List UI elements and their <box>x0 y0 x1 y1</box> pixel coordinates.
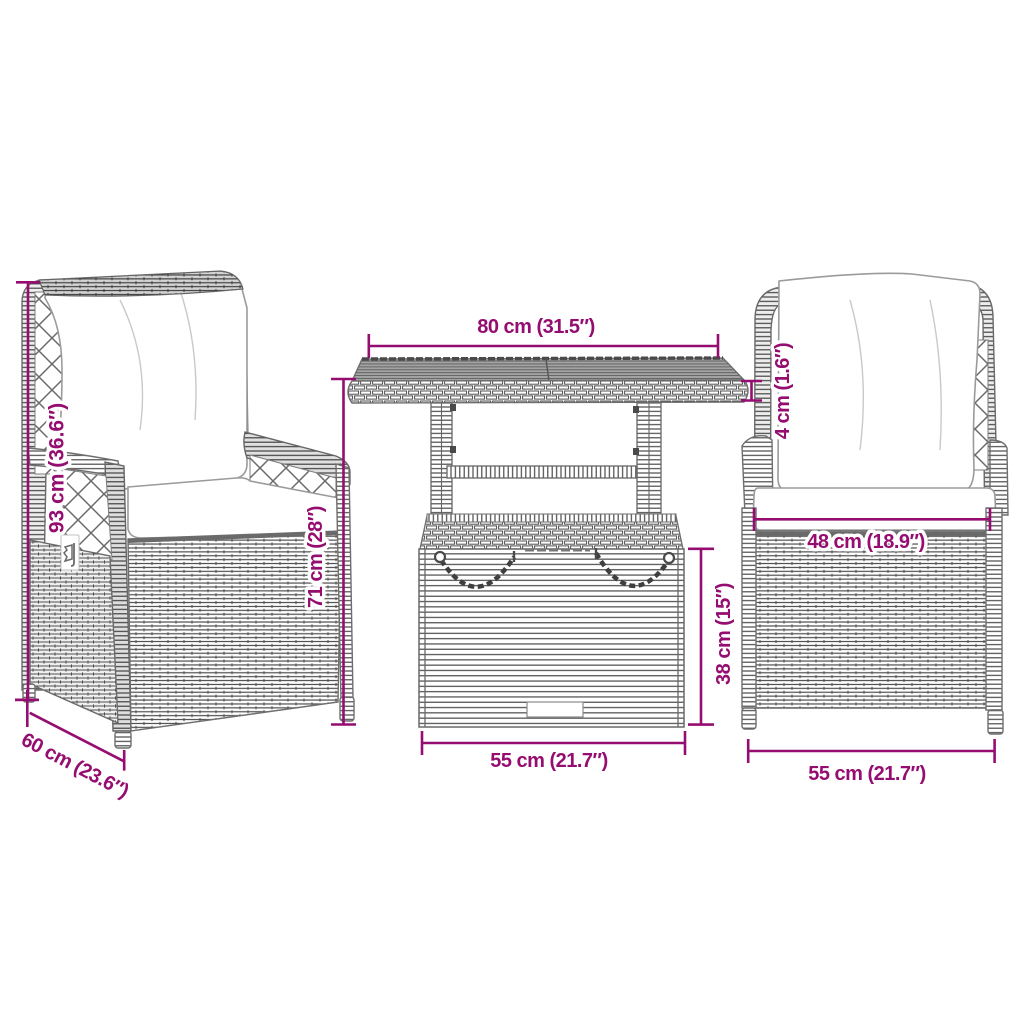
svg-text:55 cm (21.7″): 55 cm (21.7″) <box>808 763 926 785</box>
svg-text:38 cm (15″): 38 cm (15″) <box>713 583 735 685</box>
svg-text:71 cm (28″): 71 cm (28″) <box>305 506 327 608</box>
svg-text:93 cm (36.6″): 93 cm (36.6″) <box>46 403 69 533</box>
svg-text:80 cm (31.5″): 80 cm (31.5″) <box>477 316 595 338</box>
svg-text:48 cm (18.9″): 48 cm (18.9″) <box>807 531 925 553</box>
svg-text:55 cm (21.7″): 55 cm (21.7″) <box>490 750 608 772</box>
svg-text:4 cm (1.6″): 4 cm (1.6″) <box>772 343 794 439</box>
